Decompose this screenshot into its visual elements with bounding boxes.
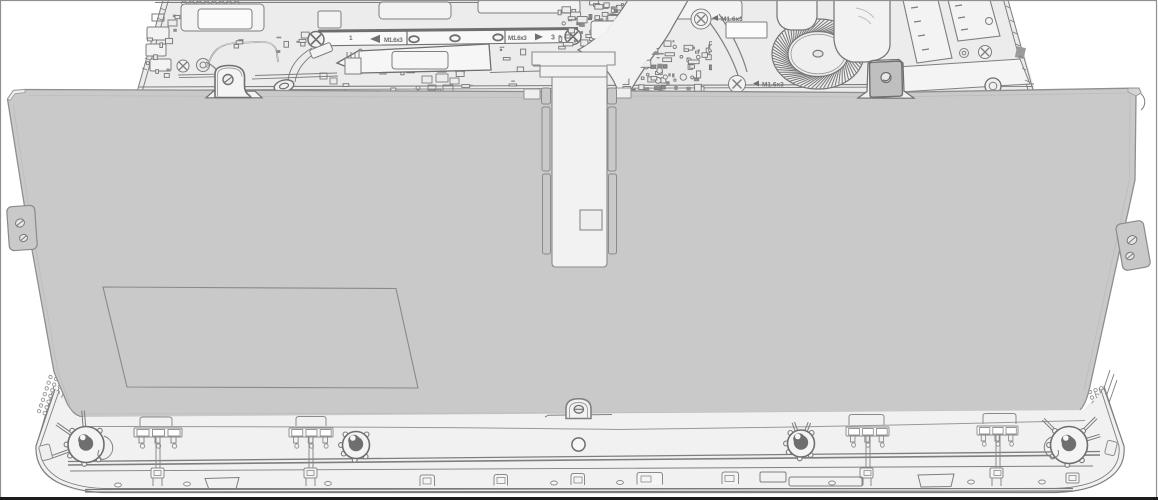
svg-text:M1.6x3: M1.6x3 xyxy=(762,82,784,89)
svg-text:M1.6x3: M1.6x3 xyxy=(508,35,527,42)
svg-text:1: 1 xyxy=(349,35,353,42)
svg-text:M1.6x3: M1.6x3 xyxy=(384,37,403,44)
svg-text:3: 3 xyxy=(551,35,555,42)
